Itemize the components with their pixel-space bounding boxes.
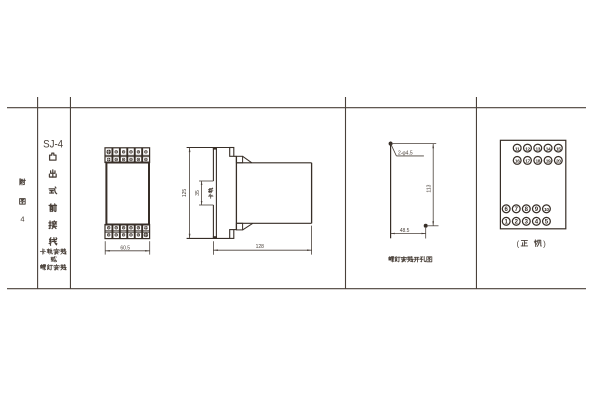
- svg-text:17: 17: [525, 159, 530, 165]
- svg-text:12: 12: [525, 146, 530, 152]
- svg-text:48.5: 48.5: [400, 228, 410, 234]
- svg-text:35: 35: [195, 190, 201, 196]
- svg-text:15: 15: [556, 146, 561, 152]
- svg-text:19: 19: [546, 159, 551, 165]
- svg-text:SJ-4: SJ-4: [43, 138, 63, 150]
- svg-text:): ): [543, 240, 546, 249]
- svg-text:20: 20: [556, 159, 561, 165]
- svg-text:4: 4: [20, 215, 24, 224]
- svg-text:14: 14: [546, 146, 551, 152]
- svg-text:(: (: [516, 240, 519, 249]
- svg-text:16: 16: [515, 159, 520, 165]
- svg-text:60.5: 60.5: [120, 246, 130, 252]
- svg-text:113: 113: [427, 184, 433, 192]
- svg-text:11: 11: [515, 146, 520, 152]
- svg-text:18: 18: [535, 159, 540, 165]
- svg-text:13: 13: [535, 146, 540, 152]
- svg-text:2-φ4.5: 2-φ4.5: [398, 151, 413, 157]
- svg-text:10: 10: [544, 207, 549, 213]
- svg-text:125: 125: [182, 189, 188, 198]
- svg-text:128: 128: [256, 244, 265, 250]
